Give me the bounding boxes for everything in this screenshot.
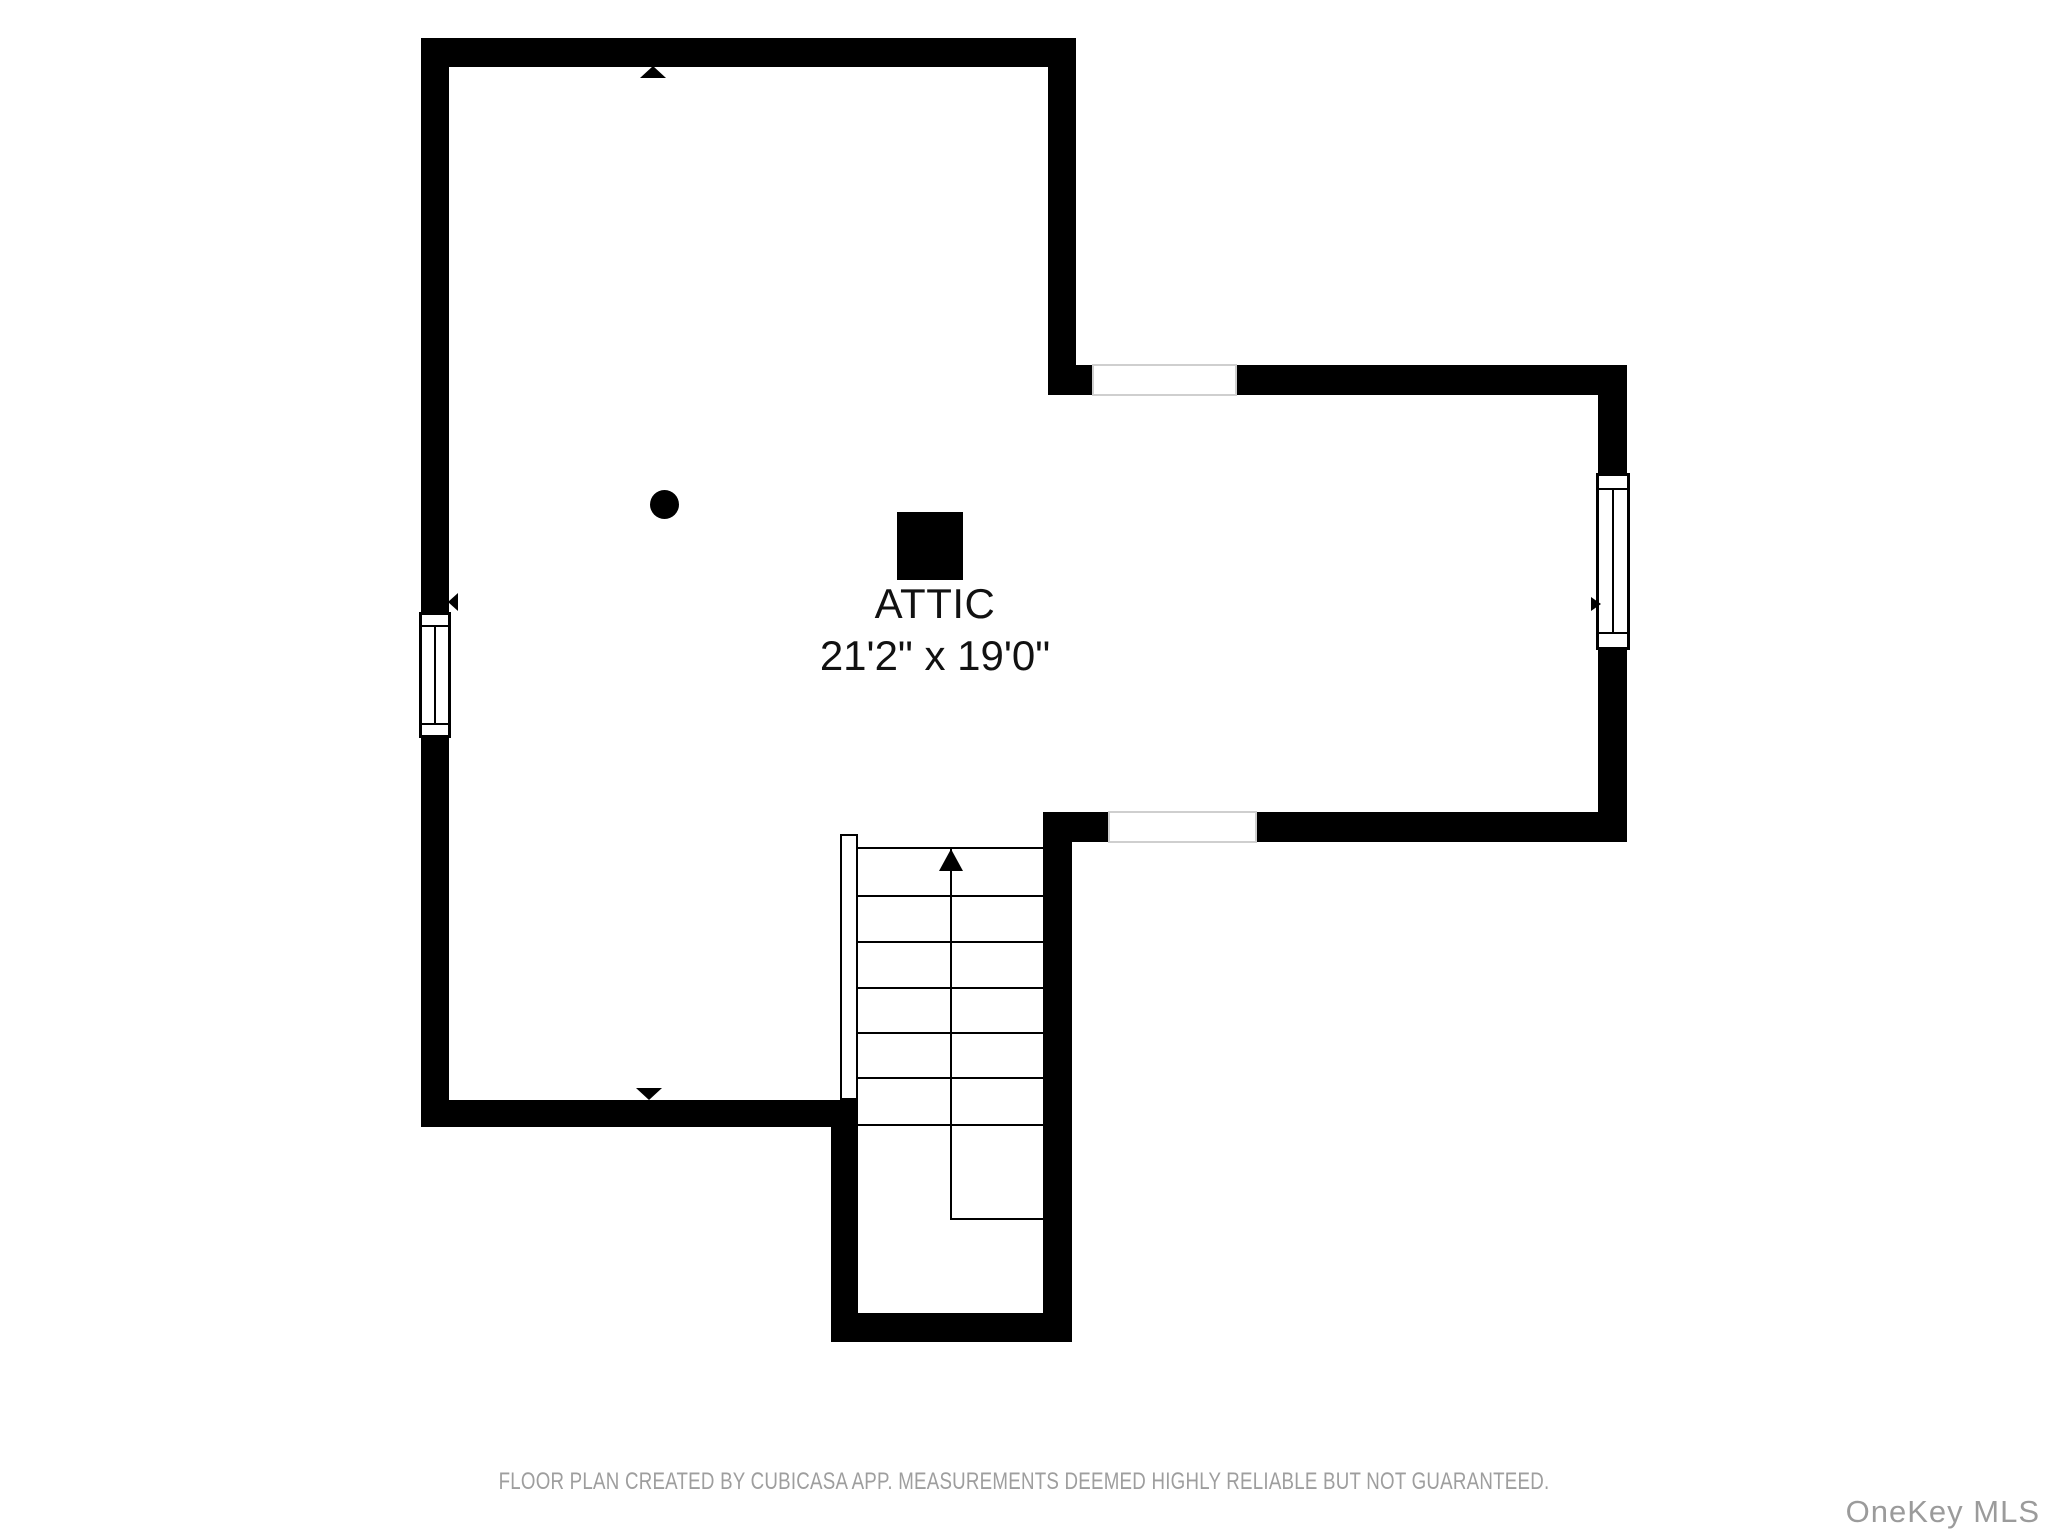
window-left-arrow-icon xyxy=(448,593,458,611)
wall-bottom-left-section xyxy=(421,1100,858,1127)
wall-left xyxy=(421,38,449,1127)
window-left xyxy=(419,612,451,738)
watermark-text: OneKey MLS xyxy=(1846,1494,2040,1530)
ceiling-dot-icon xyxy=(650,490,679,519)
north-arrow-icon xyxy=(640,66,666,78)
stair-rail xyxy=(840,834,858,1100)
disclaimer-text: FLOOR PLAN CREATED BY CUBICASA APP. MEAS… xyxy=(499,1468,1550,1496)
door-opening-lower xyxy=(1108,811,1257,843)
room-dimensions-label: 21'2" x 19'0" xyxy=(820,634,1050,678)
wall-top xyxy=(421,38,1076,67)
wall-stairwell-left xyxy=(831,1100,858,1342)
ceiling-square-icon xyxy=(897,512,963,580)
window-right xyxy=(1596,473,1630,650)
stairs-up-arrow-icon xyxy=(939,849,963,871)
south-arrow-icon xyxy=(636,1088,662,1100)
window-glass-line xyxy=(1612,490,1614,632)
window-right-arrow-icon xyxy=(1591,597,1601,611)
window-glass-line xyxy=(434,627,436,723)
floor-plan-page: ATTIC 21'2" x 19'0" FLOOR PLAN CREATED B… xyxy=(0,0,2048,1536)
window-frame-line xyxy=(1599,632,1627,634)
wall-stairwell-bottom xyxy=(831,1313,1072,1342)
window-frame-line xyxy=(422,723,448,725)
door-opening-upper xyxy=(1092,364,1237,396)
wall-upper-right xyxy=(1048,38,1076,395)
wall-stairwell-right xyxy=(1043,842,1072,1342)
room-name-label: ATTIC xyxy=(875,582,996,626)
stair-direction-line xyxy=(950,848,952,1220)
stair-tread-lower xyxy=(950,1218,1043,1220)
